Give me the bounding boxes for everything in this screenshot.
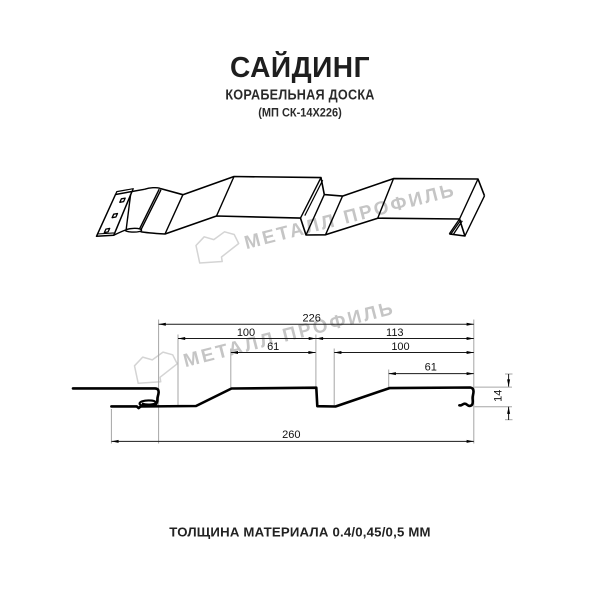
- svg-text:226: 226: [303, 313, 321, 325]
- svg-text:113: 113: [386, 327, 404, 339]
- svg-text:КОРАБЕЛЬНАЯ ДОСКА: КОРАБЕЛЬНАЯ ДОСКА: [225, 87, 374, 103]
- svg-text:САЙДИНГ: САЙДИНГ: [230, 52, 370, 84]
- svg-text:100: 100: [391, 341, 409, 353]
- svg-text:ТОЛЩИНА МАТЕРИАЛА 0.4/0,45/0,5: ТОЛЩИНА МАТЕРИАЛА 0.4/0,45/0,5 ММ: [169, 525, 430, 540]
- svg-text:(МП СК-14Х226): (МП СК-14Х226): [258, 106, 342, 120]
- svg-text:14: 14: [493, 390, 505, 402]
- svg-text:61: 61: [267, 341, 279, 353]
- svg-text:61: 61: [425, 361, 437, 373]
- svg-text:260: 260: [282, 429, 300, 441]
- svg-text:100: 100: [237, 327, 255, 339]
